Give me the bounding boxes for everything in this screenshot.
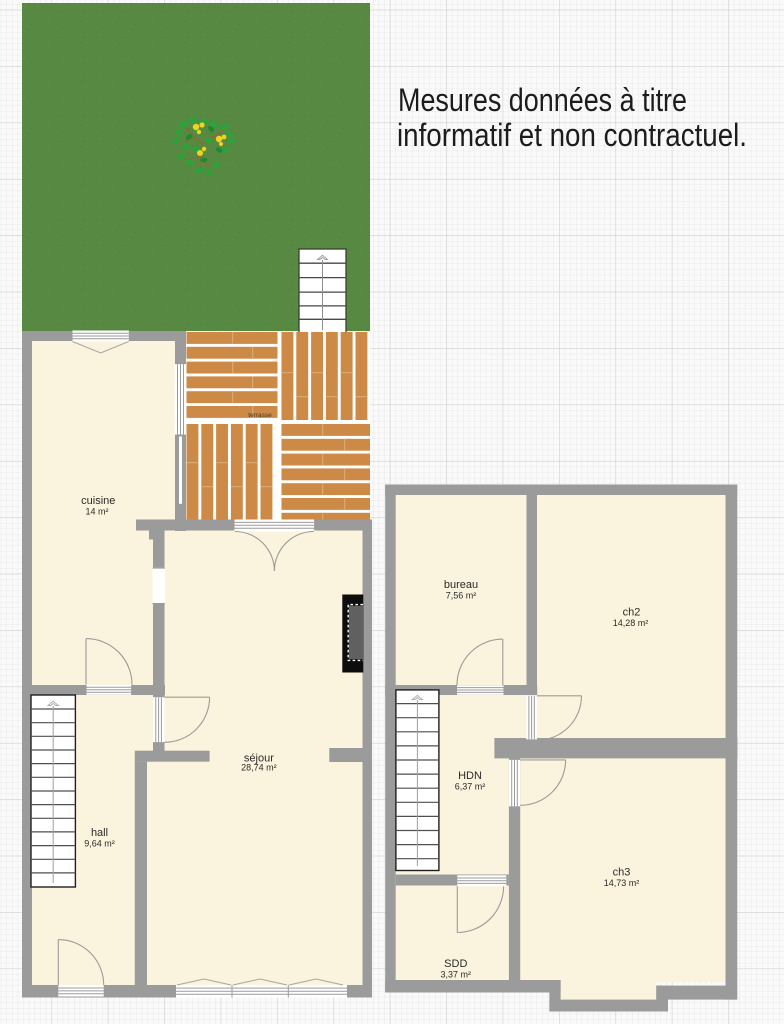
svg-text:14,73 m²: 14,73 m² [604, 878, 640, 888]
svg-text:bureau: bureau [444, 579, 478, 591]
svg-text:terrasse: terrasse [248, 412, 272, 419]
svg-text:ch2: ch2 [623, 607, 641, 619]
svg-text:HDN: HDN [458, 770, 482, 782]
svg-text:7,56 m²: 7,56 m² [446, 591, 477, 601]
svg-text:hall: hall [91, 827, 108, 839]
svg-text:6,37 m²: 6,37 m² [455, 782, 486, 792]
svg-text:ch3: ch3 [613, 867, 631, 879]
svg-text:14 m²: 14 m² [85, 507, 108, 517]
svg-text:cuisine: cuisine [81, 495, 115, 507]
svg-text:14,28 m²: 14,28 m² [613, 618, 649, 628]
svg-text:3,37 m²: 3,37 m² [441, 970, 472, 980]
svg-text:9,64 m²: 9,64 m² [84, 839, 115, 849]
svg-text:Mesures données à titre: Mesures données à titre [398, 82, 687, 118]
svg-text:informatif et non contractuel.: informatif et non contractuel. [397, 117, 747, 153]
svg-text:SDD: SDD [444, 958, 467, 970]
svg-text:28,74 m²: 28,74 m² [241, 763, 277, 773]
